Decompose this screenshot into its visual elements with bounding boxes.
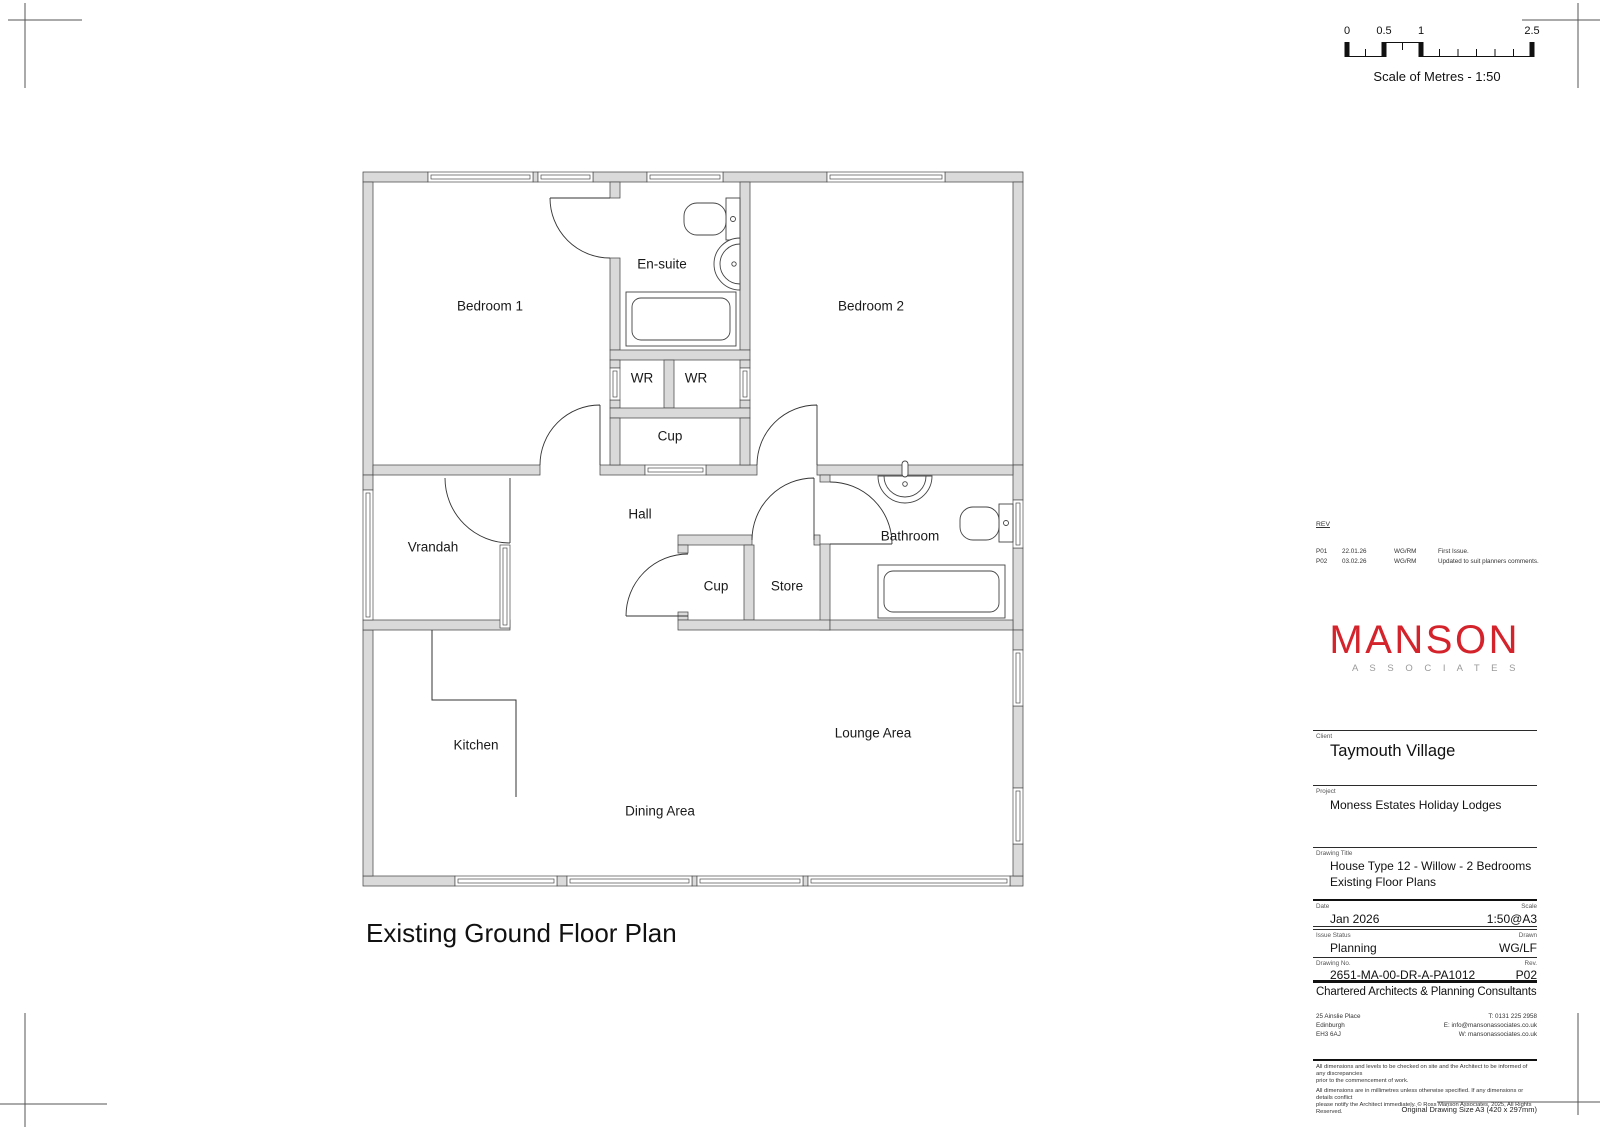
rev-date: 22.01.26 (1342, 548, 1394, 555)
drawing-title-line2: Existing Floor Plans (1330, 875, 1436, 889)
project-label: Project (1316, 788, 1336, 795)
divider (1313, 957, 1537, 958)
scale-bar (1345, 42, 1535, 57)
divider (1313, 899, 1537, 901)
drawing-title-line1: House Type 12 - Willow - 2 Bedrooms (1330, 859, 1531, 873)
divider (1313, 926, 1537, 927)
disclaimer-line3: All dimensions are in millimetres unless… (1316, 1088, 1538, 1102)
scale-tick-25: 2.5 (1524, 25, 1539, 37)
disclaimer-line2: prior to the commencement of work. (1316, 1078, 1538, 1085)
rev-desc: First Issue. (1438, 548, 1469, 555)
scale-tick-0: 0 (1344, 25, 1350, 37)
ensuite-toilet-icon (684, 198, 740, 240)
rev-date: 03.02.26 (1342, 558, 1394, 565)
room-label-lounge: Lounge Area (835, 726, 912, 741)
client-value: Taymouth Village (1330, 742, 1455, 761)
room-label-ensuite: En-suite (637, 257, 687, 272)
bathroom-bath-icon (878, 565, 1005, 618)
rev-id: P01 (1316, 548, 1342, 555)
room-label-bathroom: Bathroom (881, 529, 940, 544)
divider (1313, 929, 1537, 930)
ensuite-bath-icon (626, 292, 736, 346)
address-line2: Edinburgh (1316, 1021, 1360, 1030)
plan-title: Existing Ground Floor Plan (366, 918, 677, 949)
contact-block: T: 0131 225 2958 E: info@mansonassociate… (1444, 1012, 1537, 1039)
rev-by: WG/RM (1394, 548, 1438, 555)
drawing-no-label: Drawing No. (1316, 960, 1351, 967)
date-value: Jan 2026 (1330, 912, 1379, 926)
scale-label: Scale (1521, 903, 1537, 910)
scale-tick-1: 1 (1418, 25, 1424, 37)
scale-caption: Scale of Metres - 1:50 (1373, 69, 1500, 84)
room-label-dining: Dining Area (625, 804, 695, 819)
drawn-label: Drawn (1519, 932, 1537, 939)
rev-row-p02: P02 03.02.26 WG/RM Updated to suit plann… (1316, 558, 1539, 565)
rev-no-label: Rev. (1525, 960, 1537, 967)
room-label-kitchen: Kitchen (453, 738, 498, 753)
address-line1: 25 Ainslie Place (1316, 1012, 1360, 1021)
original-size-note: Original Drawing Size A3 (420 x 297mm) (1402, 1105, 1537, 1114)
bathroom-toilet-icon (960, 504, 1013, 542)
room-label-hall: Hall (628, 507, 651, 522)
disclaimer-line1: All dimensions and levels to be checked … (1316, 1064, 1538, 1078)
address-block: 25 Ainslie Place Edinburgh EH3 6AJ (1316, 1012, 1360, 1039)
room-label-bedroom2: Bedroom 2 (838, 299, 904, 314)
rev-by: WG/RM (1394, 558, 1438, 565)
rev-no-value: P02 (1516, 968, 1537, 982)
issue-status-label: Issue Status (1316, 932, 1351, 939)
drawing-sheet: 0 0.5 1 2.5 Scale of Metres - 1:50 Bedro… (0, 0, 1600, 1131)
divider (1313, 847, 1537, 848)
crosshair-mark-top-left (8, 3, 82, 88)
contact-website: W: mansonassociates.co.uk (1444, 1030, 1537, 1039)
room-label-cup-mid: Cup (704, 579, 729, 594)
kitchen-partition (432, 630, 516, 797)
tagline: Chartered Architects & Planning Consulta… (1316, 986, 1536, 998)
project-value: Moness Estates Holiday Lodges (1330, 798, 1501, 812)
drawing-no-value: 2651-MA-00-DR-A-PA1012 (1330, 968, 1475, 982)
divider (1313, 730, 1537, 731)
address-line3: EH3 6AJ (1316, 1030, 1360, 1039)
client-label: Client (1316, 733, 1332, 740)
rev-desc: Updated to suit planners comments. (1438, 558, 1539, 565)
contact-email: E: info@mansonassociates.co.uk (1444, 1021, 1537, 1030)
contact-phone: T: 0131 225 2958 (1444, 1012, 1537, 1021)
logo-subtitle: A S S O C I A T E S (1313, 663, 1520, 674)
divider (1313, 785, 1537, 786)
date-label: Date (1316, 903, 1329, 910)
rev-heading: REV (1316, 521, 1330, 528)
crosshair-mark-bottom-left (0, 1013, 107, 1127)
manson-logo: MANSON A S S O C I A T E S (1313, 620, 1520, 674)
room-label-cup-top: Cup (658, 429, 683, 444)
room-label-store: Store (771, 579, 803, 594)
room-label-bedroom1: Bedroom 1 (457, 299, 523, 314)
drawn-value: WG/LF (1499, 941, 1537, 955)
ensuite-sink-icon (714, 238, 740, 290)
room-label-wr-left: WR (631, 371, 654, 386)
rev-row-p01: P01 22.01.26 WG/RM First Issue. (1316, 548, 1469, 555)
floor-plan-drawing (0, 0, 1600, 1131)
scale-tick-05: 0.5 (1376, 25, 1391, 37)
room-label-wr-right: WR (685, 371, 708, 386)
scale-value: 1:50@A3 (1487, 912, 1537, 926)
issue-status-value: Planning (1330, 941, 1377, 955)
logo-wordmark: MANSON (1313, 620, 1520, 660)
room-label-vrandah: Vrandah (408, 540, 459, 555)
drawing-title-label: Drawing Title (1316, 850, 1352, 857)
divider (1313, 1059, 1537, 1061)
rev-id: P02 (1316, 558, 1342, 565)
